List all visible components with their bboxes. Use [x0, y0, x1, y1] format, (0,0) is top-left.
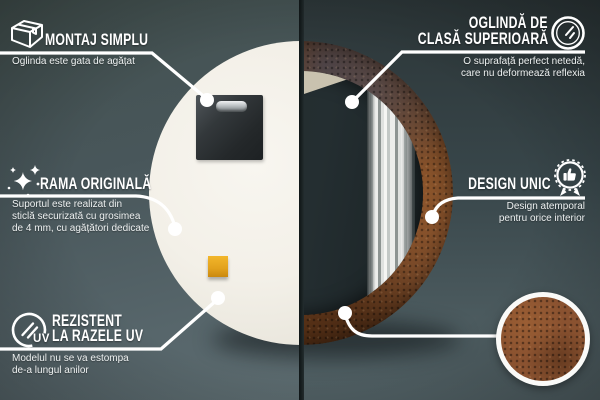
package-box-icon [8, 16, 46, 50]
reflected-ceiling [301, 71, 361, 98]
mirror-glass-reflection [301, 71, 423, 315]
callout-desc-rama-line2: sticlă securizată cu grosimea [12, 211, 140, 223]
callout-desc-design-line1: Design atemporal [507, 201, 585, 213]
callout-title-montaj: MONTAJ SIMPLU [45, 31, 148, 48]
sparkles-icon [6, 160, 44, 200]
mirror-front-half [301, 41, 453, 345]
callout-desc-montaj: Oglinda este gata de agățat [12, 56, 135, 68]
uv-icon-label: UV [33, 333, 50, 345]
callout-desc-rama-line3: de 4 mm, cu agățători dedicate [12, 223, 149, 235]
callout-desc-uv-line1: Modelul nu se va estompa [12, 353, 129, 365]
split-divider-line [299, 0, 304, 400]
reflected-curtain [367, 75, 415, 315]
hanger-hook [216, 101, 247, 112]
callout-desc-premium-line1: O suprafață perfect netedă, [463, 56, 585, 68]
callout-desc-design-line2: pentru orice interior [499, 213, 585, 225]
product-infographic: MONTAJ SIMPLU Oglinda este gata de agăța… [0, 0, 600, 400]
orange-sticker [208, 256, 228, 277]
callout-title-design: DESIGN UNIC [468, 175, 551, 192]
uv-sun-icon [9, 310, 51, 352]
rust-texture-zoom-circle [496, 292, 590, 386]
award-badge-icon [550, 158, 590, 200]
callout-title-uv-line2: LA RAZELE UV [52, 327, 143, 344]
callout-title-rama: RAMA ORIGINALĂ [40, 175, 151, 192]
callout-desc-uv-line2: de-a lungul anilor [12, 365, 89, 377]
hanger-plate [196, 95, 263, 160]
callout-desc-premium-line2: care nu deformează reflexia [461, 68, 585, 80]
mirror-back-panel [149, 41, 301, 345]
mirror-shine-icon [549, 14, 587, 52]
callout-title-premium-line2: CLASĂ SUPERIOARĂ [417, 30, 548, 47]
callout-desc-rama-line1: Suportul este realizat din [12, 199, 122, 211]
